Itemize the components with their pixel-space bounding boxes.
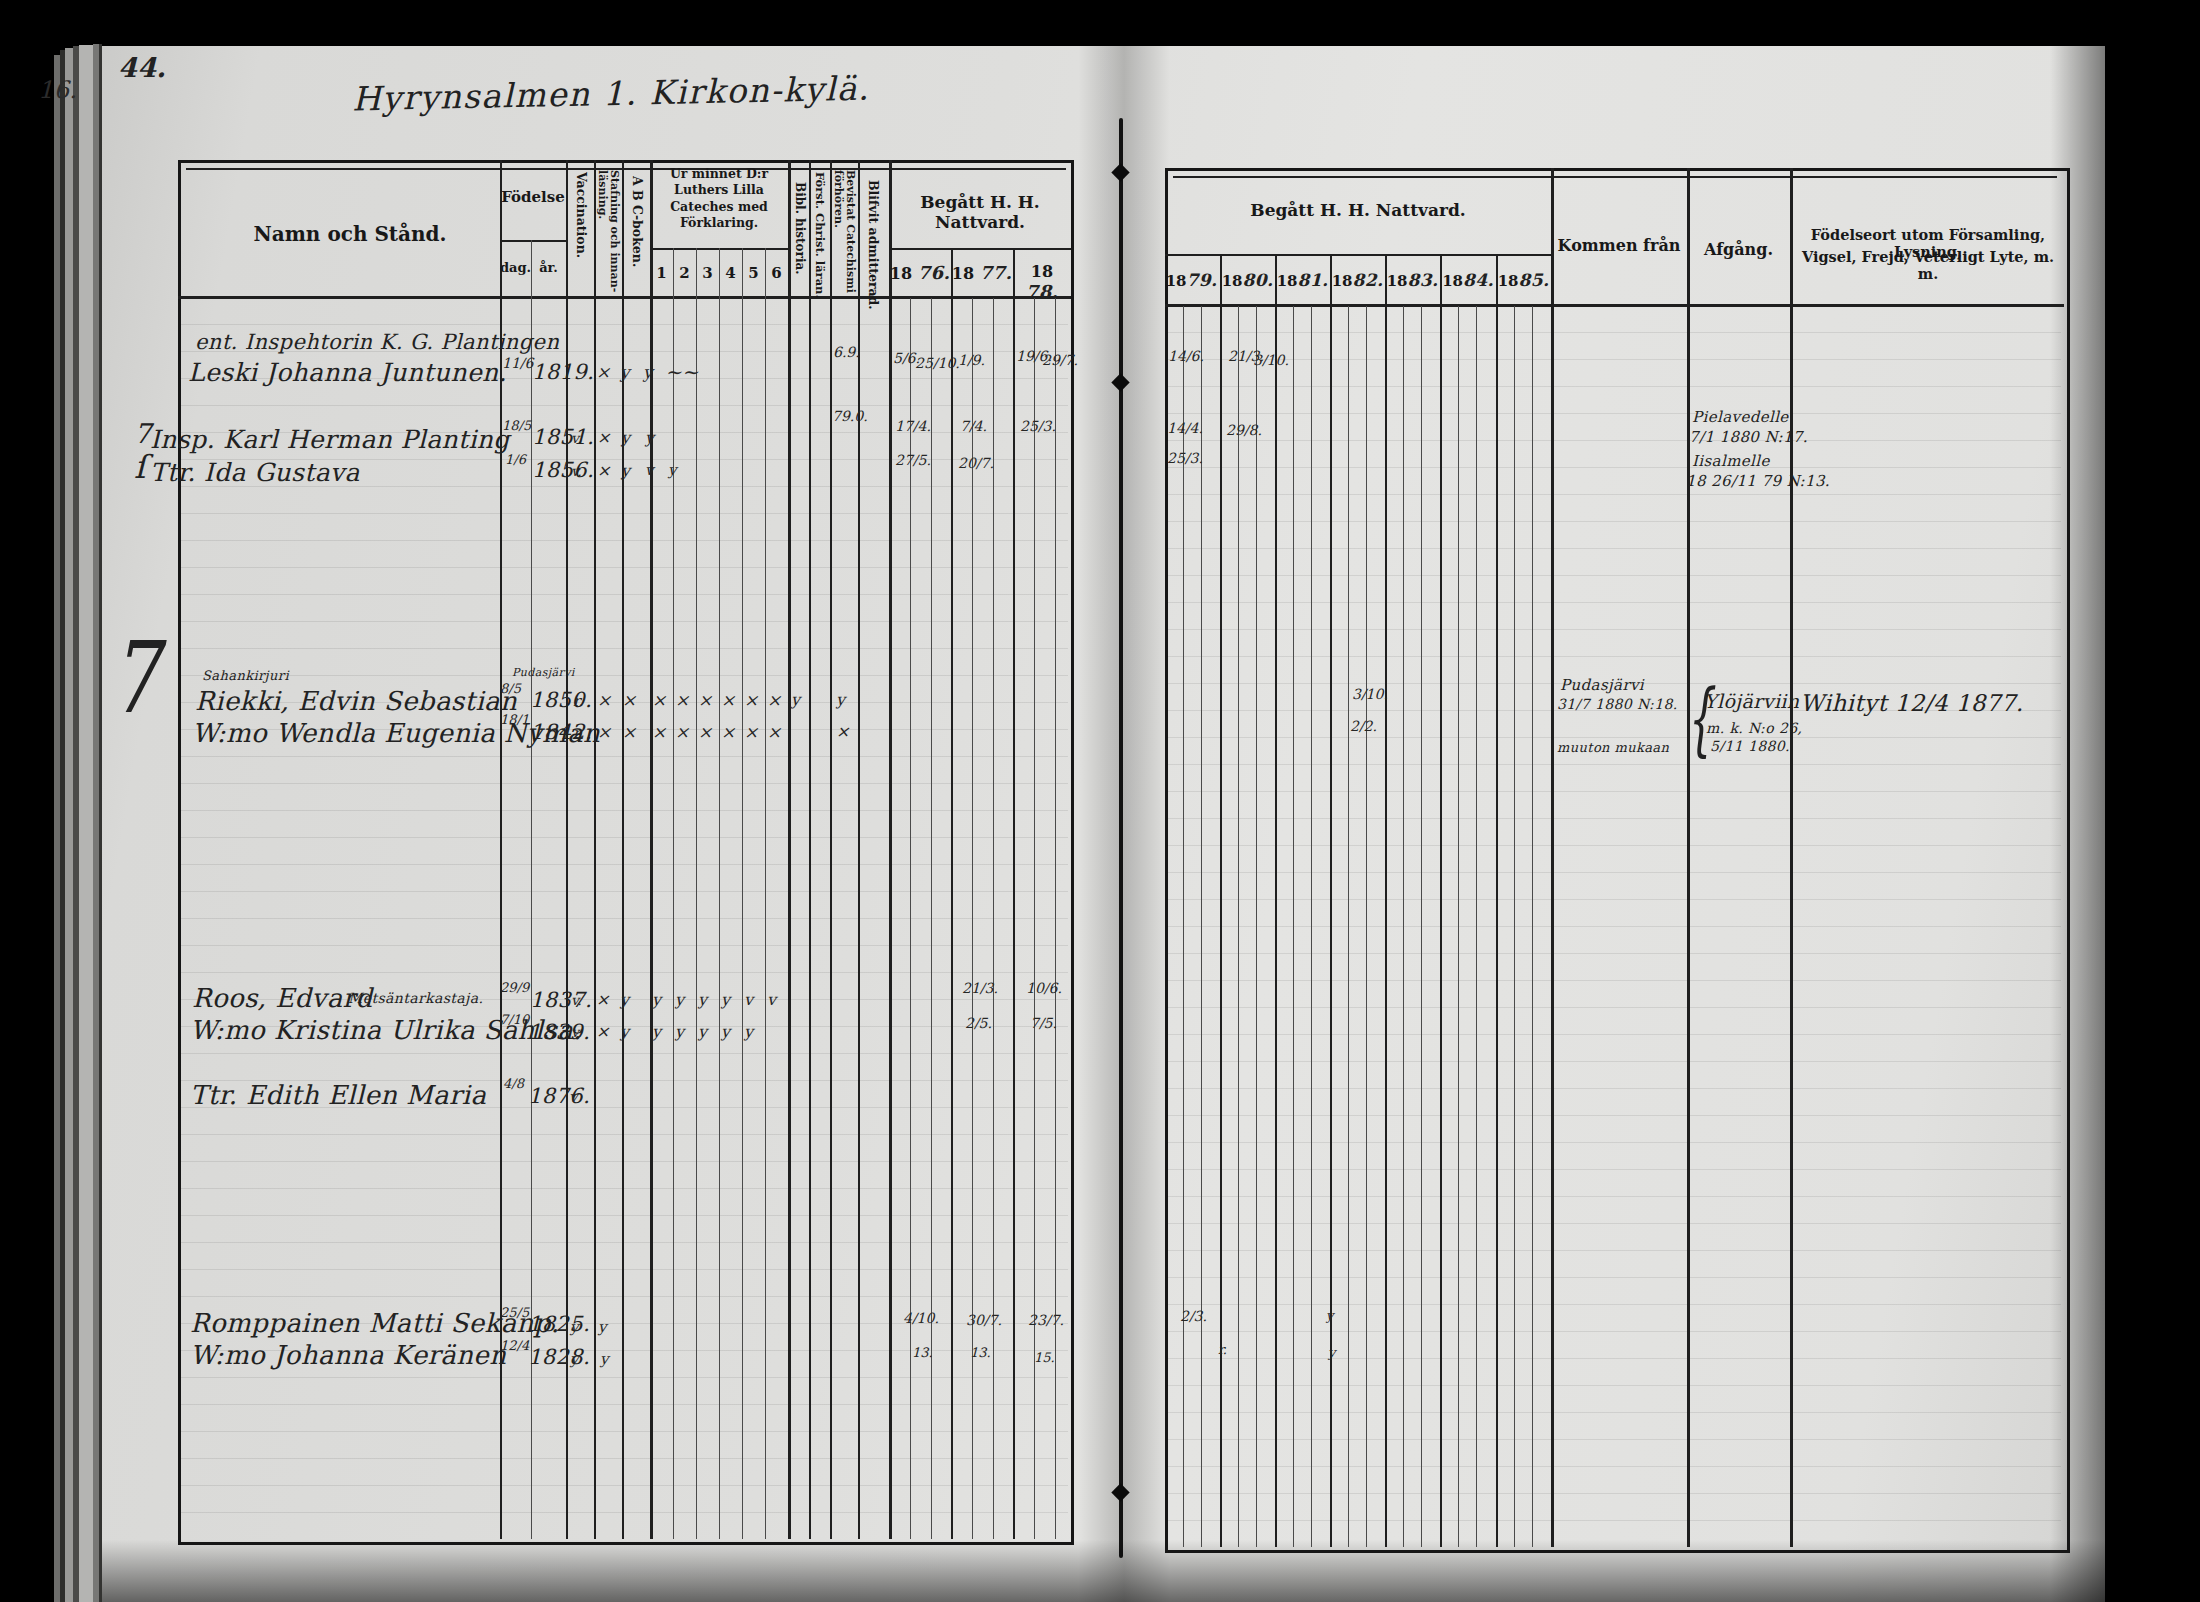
birth-day: 29/9 xyxy=(500,980,529,995)
birth-year: 1837. xyxy=(530,988,592,1012)
spelling-mark: y xyxy=(598,1318,606,1336)
grid-line xyxy=(1403,306,1404,1547)
grid-line xyxy=(186,168,1066,170)
communion-date: 4/10. xyxy=(903,1310,939,1326)
departure-note: m. k. N:o 26, xyxy=(1706,720,1802,736)
communion-date: 3/10. xyxy=(1253,352,1289,368)
catechism-mark: y xyxy=(698,1022,707,1041)
year-handwritten: 76. xyxy=(918,262,951,283)
margin-number: 7 xyxy=(134,418,152,449)
year-printed-prefix: 18 xyxy=(890,264,912,283)
communion-date: 27/5. xyxy=(895,452,931,468)
catechism-col-5: 5 xyxy=(742,264,765,282)
grid-line xyxy=(178,296,1071,299)
catechism-mark: × xyxy=(698,722,712,742)
catechism-mark: × xyxy=(698,690,712,710)
grid-line xyxy=(1421,306,1422,1547)
grid-line xyxy=(1440,254,1442,1547)
year-header-1885: 1885. xyxy=(1496,270,1551,290)
page-edge xyxy=(79,45,93,1602)
grid-line xyxy=(910,298,911,1539)
abc-mark: y xyxy=(620,362,630,382)
catechism-mark: y xyxy=(652,1022,661,1041)
grid-line xyxy=(1055,298,1056,1539)
catechism-mark: y xyxy=(721,990,730,1009)
grid-line xyxy=(993,298,994,1539)
column-header-birth-year: år. xyxy=(531,260,566,275)
grid-line xyxy=(1551,168,1554,1547)
entry-note: ent. Inspehtorin K. G. Plantingen xyxy=(195,330,559,354)
grid-line xyxy=(1183,306,1184,1547)
catechism-col-3: 3 xyxy=(696,264,719,282)
catechism-mark: v xyxy=(767,990,776,1009)
abc-mark: × xyxy=(622,722,636,742)
communion-date: 25/10. xyxy=(915,355,960,371)
year-header-1878: 18 78. xyxy=(1013,262,1071,302)
year-printed-prefix: 18 xyxy=(1277,272,1298,290)
year-handwritten: 85. xyxy=(1519,270,1550,290)
abc-mark: y xyxy=(620,990,629,1009)
column-header-christian-doctrine: Först. Christ. läran. xyxy=(813,172,826,299)
column-header-birthplace-line2: Vigsel, Frejd, Veterligt Lyte, m. m. xyxy=(1795,248,2061,282)
year-handwritten: 81. xyxy=(1298,270,1329,290)
grid-line xyxy=(1790,168,1793,1547)
year-header-1884: 1884. xyxy=(1440,270,1496,290)
year-handwritten: 80. xyxy=(1243,270,1274,290)
catechism-mark: y xyxy=(675,990,684,1009)
grid-line xyxy=(1532,306,1533,1547)
catechism-mark: × xyxy=(652,690,666,710)
year-handwritten: 79. xyxy=(1187,270,1218,290)
departure-note: Iisalmelle xyxy=(1692,452,1770,470)
grid-line xyxy=(1514,306,1515,1547)
year-handwritten: 77. xyxy=(980,262,1013,283)
catechism-mark: y xyxy=(721,1022,730,1041)
column-header-name: Namn och Stånd. xyxy=(210,222,490,246)
grid-line xyxy=(1293,306,1294,1547)
birth-day: 8/5 xyxy=(500,681,521,696)
communion-mark: y xyxy=(1326,1308,1333,1323)
column-header-communion-right: Begått H. H. Nattvard. xyxy=(1165,200,1551,220)
communion-date: 3/10. xyxy=(1352,686,1388,702)
spelling-mark: × xyxy=(597,722,611,742)
birth-day: 25/5 xyxy=(500,1305,529,1320)
year-printed-prefix: 18 xyxy=(1332,272,1353,290)
scanned-parish-register-page: 16. 44. Hyrynsalmen 1. Kirkon-kylä. Namn… xyxy=(0,0,2200,1602)
catechism-mark: × xyxy=(744,690,758,710)
birthplace-note: Pudasjärvi xyxy=(512,666,575,679)
column-header-birth-day: dag. xyxy=(500,260,531,275)
entry-name: Insp. Karl Herman Planting xyxy=(150,425,510,454)
grid-line xyxy=(1275,254,1277,1547)
communion-date: 15. xyxy=(1034,1350,1055,1365)
year-header-1883: 1883. xyxy=(1385,270,1440,290)
catechism-mark: × xyxy=(721,722,735,742)
entry-name: W:mo Johanna Keränen xyxy=(190,1340,506,1370)
entry-name: Leski Johanna Juntunen. xyxy=(188,358,507,387)
departure-note: 5/11 1880. xyxy=(1710,738,1790,754)
abc-mark: y xyxy=(621,461,630,480)
birth-day: 4/8 xyxy=(503,1076,524,1091)
grid-line xyxy=(1476,306,1477,1547)
column-header-vaccination: Vaccination. xyxy=(574,172,588,258)
grid-line xyxy=(1385,254,1387,1547)
page-number: 44. xyxy=(118,52,166,83)
margin-number-large: 7 xyxy=(110,620,159,736)
grid-line xyxy=(1687,168,1690,1547)
vaccination-mark: v. xyxy=(571,430,582,446)
birth-year: 1819. xyxy=(532,360,594,384)
grid-line xyxy=(1458,306,1459,1547)
grid-line xyxy=(1173,176,2057,178)
marriage-note: Wihityt 12/4 1877. xyxy=(1800,690,2024,716)
entry-name: Ttr. Edith Ellen Maria xyxy=(190,1080,486,1110)
communion-date: 7/4. xyxy=(960,418,987,434)
communion-date: 29/8. xyxy=(1226,422,1262,438)
vaccination-mark: y xyxy=(570,1318,578,1336)
catechism-mark: y xyxy=(744,1022,753,1041)
stitching-thread xyxy=(1119,118,1123,1558)
column-header-abc: A B C-boken. xyxy=(630,176,644,267)
communion-date: 20/7. xyxy=(958,455,994,471)
communion-date: 30/7. xyxy=(966,1312,1002,1328)
year-header-1881: 1881. xyxy=(1275,270,1330,290)
column-header-departure: Afgång. xyxy=(1687,240,1790,259)
birth-year: 1856. xyxy=(532,458,594,482)
birth-day: 1/6 xyxy=(505,452,526,467)
birth-year: 1825. xyxy=(528,1312,590,1336)
communion-date: 13. xyxy=(912,1345,933,1360)
communion-date: 14/6. xyxy=(1168,348,1204,364)
vaccination-mark: v. xyxy=(571,992,582,1008)
column-header-bible-history: Bibl. historia. xyxy=(793,182,806,274)
vaccination-mark: r. xyxy=(573,724,583,742)
come-from-note: muuton mukaan xyxy=(1557,740,1669,755)
birth-day: 18/5 xyxy=(502,418,531,433)
abc-mark: × xyxy=(622,690,636,710)
grid-line xyxy=(673,248,674,1539)
communion-mark: y xyxy=(1328,1345,1335,1360)
catechism-col-1: 1 xyxy=(650,264,673,282)
communion-date: 17/4. xyxy=(895,418,931,434)
come-from-note: 31/7 1880 N:18. xyxy=(1557,696,1678,712)
communion-date: 2/5. xyxy=(965,1015,992,1031)
column-header-catechism: Ur minnet D:r Luthers Lilla Cateches med… xyxy=(652,166,786,231)
communion-date: 2/3. xyxy=(1180,1308,1207,1324)
year-printed-prefix: 18 xyxy=(1166,272,1187,290)
departure-note: Ylöjärviin xyxy=(1704,690,1799,712)
year-printed-prefix: 18 xyxy=(952,264,974,283)
catechism-mark: × xyxy=(675,690,689,710)
abc-mark: y xyxy=(621,428,630,447)
year-handwritten: 84. xyxy=(1463,270,1494,290)
year-header-1876: 18 76. xyxy=(889,262,951,283)
catechism-mark: y xyxy=(668,461,676,479)
abc-mark: y xyxy=(620,1022,629,1041)
year-handwritten: 78. xyxy=(1026,281,1059,302)
departure-note: Pielavedelle xyxy=(1692,408,1789,426)
margin-bracket: ſ xyxy=(134,448,146,486)
birth-year: 1851. xyxy=(532,425,594,449)
communion-date: 25/3. xyxy=(1167,450,1203,466)
year-header-1879: 1879. xyxy=(1163,270,1220,290)
catechism-col-4: 4 xyxy=(719,264,742,282)
grid-line xyxy=(765,248,766,1539)
occupation-note: Sahankirjuri xyxy=(202,668,289,683)
vaccination-mark: v. xyxy=(571,1024,582,1040)
gutter-shadow xyxy=(1078,46,1170,1602)
vaccination-mark: v. xyxy=(571,463,582,479)
vaccination-mark: r. xyxy=(573,692,583,710)
grid-line xyxy=(889,248,1071,250)
year-handwritten: 83. xyxy=(1408,270,1439,290)
grid-line xyxy=(1256,306,1257,1547)
bible-history-mark: y xyxy=(791,690,800,709)
vaccination-mark: y xyxy=(570,1350,578,1368)
year-handwritten: 82. xyxy=(1353,270,1384,290)
communion-date: 29/7. xyxy=(1042,352,1078,368)
communion-date: 23/7. xyxy=(1028,1312,1064,1328)
communion-date: r. xyxy=(1218,1342,1227,1357)
scribble-mark: ~~ xyxy=(665,360,699,384)
grid-line xyxy=(696,248,697,1539)
communion-date: 7/5. xyxy=(1030,1015,1057,1031)
catechism-mark: × xyxy=(652,722,666,742)
column-header-attended-examinations: Bevistat Catechismi förhören. xyxy=(831,170,856,294)
entry-name: Ttr. Ida Gustava xyxy=(150,458,360,487)
grid-line xyxy=(1311,306,1312,1547)
spelling-mark: × xyxy=(596,362,610,382)
year-printed-prefix: 18 xyxy=(1498,272,1519,290)
communion-date: 14/4. xyxy=(1167,420,1203,436)
grid-line xyxy=(1165,254,1551,256)
birth-day: 7/10 xyxy=(500,1012,529,1027)
grid-line xyxy=(951,248,953,1539)
departure-note: 18 26/11 79 N:13. xyxy=(1686,472,1830,490)
catechism-mark: y xyxy=(652,990,661,1009)
communion-date: 13. xyxy=(970,1345,991,1360)
catechism-mark: × xyxy=(721,690,735,710)
communion-date: 10/6. xyxy=(1026,980,1062,996)
column-header-admitted: Blifvit admitterad. xyxy=(866,180,880,310)
spelling-mark: × xyxy=(596,1022,609,1041)
column-header-come-from: Kommen från xyxy=(1551,236,1687,255)
occupation-note: Metsäntarkastaja. xyxy=(348,990,483,1006)
birth-day: 12/4 xyxy=(500,1338,529,1353)
grid-line xyxy=(1496,254,1498,1547)
examination-note: 79.0. xyxy=(832,408,868,424)
communion-date: 21/3. xyxy=(962,980,998,996)
examination-note: 6.9. xyxy=(833,344,860,360)
vaccination-mark: v xyxy=(569,1088,577,1106)
entry-name: Roos, Edvard xyxy=(192,983,372,1013)
catechism-mark: y xyxy=(645,428,654,447)
catechism-mark: × xyxy=(675,722,689,742)
page-edge xyxy=(65,48,73,1602)
spelling-mark: y xyxy=(600,1350,608,1368)
communion-date: 25/3. xyxy=(1020,418,1056,434)
grid-line xyxy=(500,240,566,242)
grid-line xyxy=(1238,306,1239,1547)
grid-line xyxy=(1366,306,1367,1547)
catechism-mark: y xyxy=(675,1022,684,1041)
spelling-mark: × xyxy=(597,428,610,447)
year-printed-prefix: 18 xyxy=(1222,272,1243,290)
catechism-mark: × xyxy=(767,722,781,742)
examination-mark: × xyxy=(836,722,849,741)
birth-year: 1828. xyxy=(528,1345,590,1369)
year-header-1877: 18 77. xyxy=(951,262,1013,283)
birth-day: 11/6 xyxy=(502,355,533,371)
birth-year: 1876. xyxy=(528,1084,590,1108)
grid-line xyxy=(809,160,811,1539)
departure-note: 7/1 1880 N:17. xyxy=(1689,428,1808,446)
spelling-mark: × xyxy=(597,461,610,480)
communion-date: 1/9. xyxy=(958,352,985,368)
catechism-mark: v xyxy=(744,990,753,1009)
grid-line xyxy=(830,160,832,1539)
year-header-1882: 1882. xyxy=(1330,270,1385,290)
column-header-communion-left: Begått H. H. Nattvard. xyxy=(889,192,1071,232)
grid-line xyxy=(1551,304,2064,307)
catechism-mark: × xyxy=(744,722,758,742)
column-header-birth: Födelse xyxy=(500,188,566,206)
year-printed-prefix: 18 xyxy=(1387,272,1408,290)
spelling-mark: × xyxy=(596,990,609,1009)
grid-line xyxy=(889,160,892,1539)
grid-line xyxy=(1201,306,1202,1547)
grid-line xyxy=(1013,248,1015,1539)
year-printed-prefix: 18 xyxy=(1442,272,1463,290)
year-printed-prefix: 18 xyxy=(1031,262,1053,281)
year-header-1880: 1880. xyxy=(1220,270,1275,290)
grid-line xyxy=(788,160,791,1539)
grid-line xyxy=(858,160,860,1539)
spelling-mark: × xyxy=(597,690,611,710)
examination-mark: y xyxy=(836,690,845,709)
catechism-mark: v xyxy=(645,461,653,479)
column-header-spelling: Stafning och innan-läsning. xyxy=(595,170,620,294)
catechism-col-2: 2 xyxy=(673,264,696,282)
row-guide-lines xyxy=(1168,306,2061,1544)
grid-line xyxy=(1165,304,1551,307)
edge-page-number: 16. xyxy=(38,76,77,104)
come-from-note: Pudasjärvi xyxy=(1560,676,1644,694)
grid-line xyxy=(719,248,720,1539)
catechism-mark: y xyxy=(698,990,707,1009)
birth-day: 18/1 xyxy=(500,712,529,727)
grid-line xyxy=(742,248,743,1539)
catechism-mark: y xyxy=(643,362,653,382)
catechism-col-6: 6 xyxy=(765,264,788,282)
grid-line xyxy=(1348,306,1349,1547)
entry-name: Riekki, Edvin Sebastian xyxy=(195,686,517,716)
communion-date: 2/2. xyxy=(1350,718,1377,734)
catechism-mark: × xyxy=(767,690,781,710)
